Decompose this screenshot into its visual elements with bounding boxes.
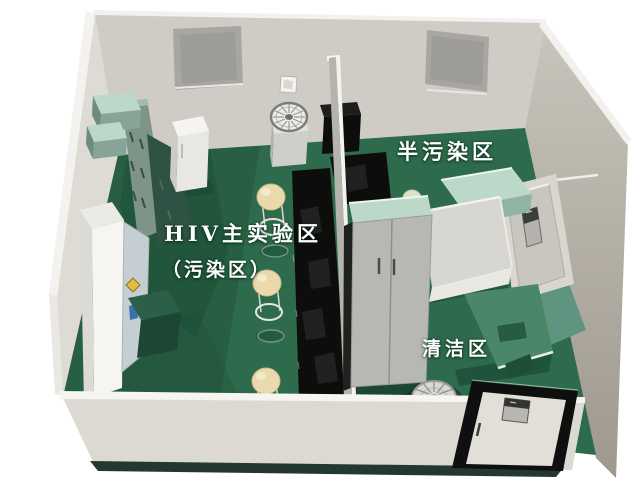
- fridge-cabinet: [170, 116, 209, 192]
- wall-panel-right: [425, 30, 489, 94]
- lab-3d-layout: HIV主实验区 （污染区） 半污染区 清洁区: [0, 0, 640, 479]
- switch-box: [280, 76, 297, 93]
- zone-label-contaminated: （污染区）: [162, 255, 272, 282]
- zone-label-semi-contaminated: 半污染区: [397, 136, 497, 166]
- entry-door: [452, 380, 578, 471]
- stool-seat: [257, 184, 285, 210]
- centrifuge: [271, 103, 307, 131]
- counter-block-lower: [86, 122, 127, 159]
- double-door-cabinet: [343, 196, 432, 391]
- zone-label-clean: 清洁区: [422, 334, 491, 361]
- wall-panel-left: [173, 26, 243, 90]
- zone-label-main-lab: HIV主实验区: [164, 218, 322, 248]
- pass-table: [420, 197, 512, 302]
- stool-seat: [252, 368, 280, 394]
- storage-cabinet-large: [80, 202, 124, 404]
